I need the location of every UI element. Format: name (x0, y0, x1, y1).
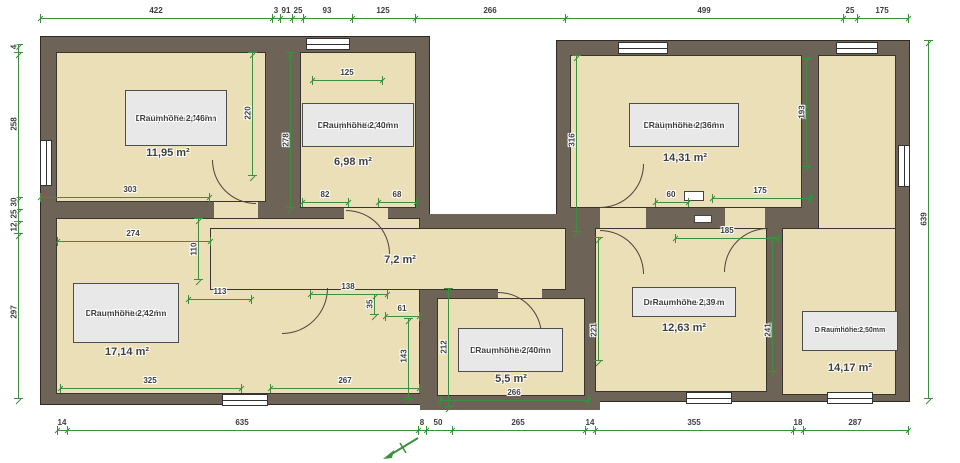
dimension-value: 113 (214, 287, 227, 296)
dimension-value: 93 (323, 6, 332, 15)
dimension-line (57, 430, 908, 431)
room-label-line: Raumhöhe 2,36m (649, 120, 719, 131)
room-label-box-schlafzimmer: SchlafzimmerDrempelhöhe1 1,00mDrempelhöh… (802, 311, 898, 351)
window-glass-line (904, 146, 905, 186)
dimension-value: 639 (920, 212, 929, 225)
dimension-line (270, 388, 419, 389)
dimension-value: 82 (321, 190, 330, 199)
dimension-value: 185 (720, 226, 733, 235)
window (686, 392, 732, 404)
dimension-value: 18 (794, 418, 803, 427)
room-area-flur: 12,63 m² (662, 322, 706, 334)
window (222, 394, 268, 406)
dimension-value: 278 (282, 133, 291, 146)
dimension-value: 325 (143, 376, 156, 385)
door-opening (214, 202, 258, 218)
dimension-value: 316 (568, 133, 577, 146)
dimension-line (188, 299, 251, 300)
window-glass-line (687, 398, 731, 399)
dimension-value: 241 (764, 323, 773, 336)
dimension-value: 50 (434, 418, 443, 427)
dimension-value: 266 (507, 388, 520, 397)
dimension-line (57, 241, 210, 242)
room-label-line: Raumhöhe 2,42m (91, 308, 161, 319)
room-area-diele: 7,2 m² (384, 254, 416, 266)
dimension-value: 221 (590, 323, 599, 336)
window (898, 145, 910, 187)
room-label-box-wohnzimmer: Wohnzimmer Drempelhöhe 1,23mRaumhöhe 2, … (125, 90, 227, 146)
dimension-value: 125 (340, 68, 353, 77)
dimension-line (385, 316, 419, 317)
dimension-line (40, 18, 908, 19)
dimension-tick-slash (16, 399, 22, 405)
dimension-value: 14 (586, 418, 595, 427)
window-glass-line (46, 141, 47, 185)
dimension-value: 193 (798, 105, 807, 118)
dimension-value: 61 (398, 304, 407, 313)
dimension-value: 212 (440, 340, 449, 353)
dimension-value: 110 (190, 243, 199, 256)
room-label-line: Raumhöhe 2, 46m (140, 113, 213, 124)
dimension-value: 60 (667, 190, 676, 199)
dimension-value: 258 (10, 117, 19, 130)
dimension-line (772, 237, 773, 371)
floor-plan-canvas: 4223912593125266499251751463585026514355… (0, 0, 960, 463)
dimension-value: 422 (149, 6, 162, 15)
dimension-value: 25 (294, 6, 303, 15)
dimension-value: 25 (846, 6, 855, 15)
dimension-value: 91 (282, 6, 291, 15)
window (618, 42, 668, 54)
dimension-value: 68 (393, 190, 402, 199)
dimension-value: 30 (10, 198, 19, 207)
dimension-line (40, 197, 209, 198)
dimension-line (60, 388, 241, 389)
dimension-value: 25 (10, 210, 19, 219)
dimension-value: 355 (687, 418, 700, 427)
dimension-value: 274 (126, 229, 139, 238)
room-label-line: Raumhöhe 2,40m (323, 120, 393, 131)
dimension-value: 3 (274, 6, 278, 15)
north-arrow-icon (380, 434, 422, 462)
wall-niche (694, 215, 712, 223)
wall-niche (684, 191, 704, 201)
dimension-line (655, 202, 688, 203)
dimension-value: 175 (875, 6, 888, 15)
dimension-tick-slash (926, 399, 932, 405)
room-area-ankleidezimmer: 6,98 m² (334, 156, 372, 168)
dimension-line (378, 202, 416, 203)
window (827, 392, 873, 404)
door-opening (600, 208, 646, 228)
room-label-line: Raumhöhe 2,39 (653, 297, 716, 308)
dimension-value: 125 (376, 6, 389, 15)
room-label-box-flur: Drempelhöhe 0,94mRaumhöhe 2,39 (632, 287, 736, 317)
dimension-value: 635 (235, 418, 248, 427)
room-label-box-ankleidezimmer: AnkleidezimmerDrempelhöhe 1,10mRaumhöhe … (302, 103, 414, 147)
window-glass-line (619, 48, 667, 49)
room-label-box-bad: BadDrempelhöhe 0,92mRaumhöhe 2,40m (458, 328, 563, 372)
dimension-value: 266 (483, 6, 496, 15)
dimension-value: 220 (244, 106, 253, 119)
room-area-wohnzimmer: 11,95 m² (146, 147, 189, 159)
dimension-value: 303 (123, 185, 136, 194)
dimension-line (302, 202, 348, 203)
room-area-bad: 5,5 m² (495, 373, 527, 385)
dimension-value: 265 (511, 418, 524, 427)
dimension-value: 267 (338, 376, 351, 385)
dimension-value: 175 (753, 186, 766, 195)
dimension-line (675, 238, 778, 239)
dimension-value: 8 (420, 418, 424, 427)
room-label-line: Raumhöhe 2,50m (821, 326, 879, 335)
dimension-line (440, 400, 588, 401)
dimension-line (598, 237, 599, 360)
room-label-line: Raumhöhe 2,40m (475, 345, 545, 356)
dimension-value: 297 (10, 305, 19, 318)
dimension-value: 499 (697, 6, 710, 15)
dimension-value: 138 (341, 282, 354, 291)
dimension-value: 12 (10, 223, 19, 232)
dimension-value: 14 (58, 418, 67, 427)
room-area-kinderzimmer: 14,31 m² (663, 152, 707, 164)
window-glass-line (828, 398, 872, 399)
room-area-kueche: 17,14 m² (105, 346, 149, 358)
door-opening (725, 208, 765, 228)
dimension-value: 287 (848, 418, 861, 427)
window (40, 140, 52, 186)
window-glass-line (837, 48, 877, 49)
dimension-line (312, 80, 382, 81)
dimension-value: 4 (10, 45, 19, 49)
window-glass-line (223, 400, 267, 401)
window-glass-line (307, 44, 349, 45)
room-label-box-kueche: Küche Drempelhöhe 1,16mRaumhöhe 2,42m (73, 283, 179, 343)
dimension-value: 143 (400, 349, 409, 362)
dimension-line (712, 198, 810, 199)
room-area-schlafzimmer: 14,17 m² (828, 362, 872, 374)
room-label-box-kinderzimmer: KinderzimmerDrempelhöhe 0,62mRaumhöhe 2,… (629, 103, 739, 147)
window (306, 38, 350, 50)
window (836, 42, 878, 54)
dimension-value: 35 (366, 300, 375, 309)
dimension-line (290, 52, 291, 207)
